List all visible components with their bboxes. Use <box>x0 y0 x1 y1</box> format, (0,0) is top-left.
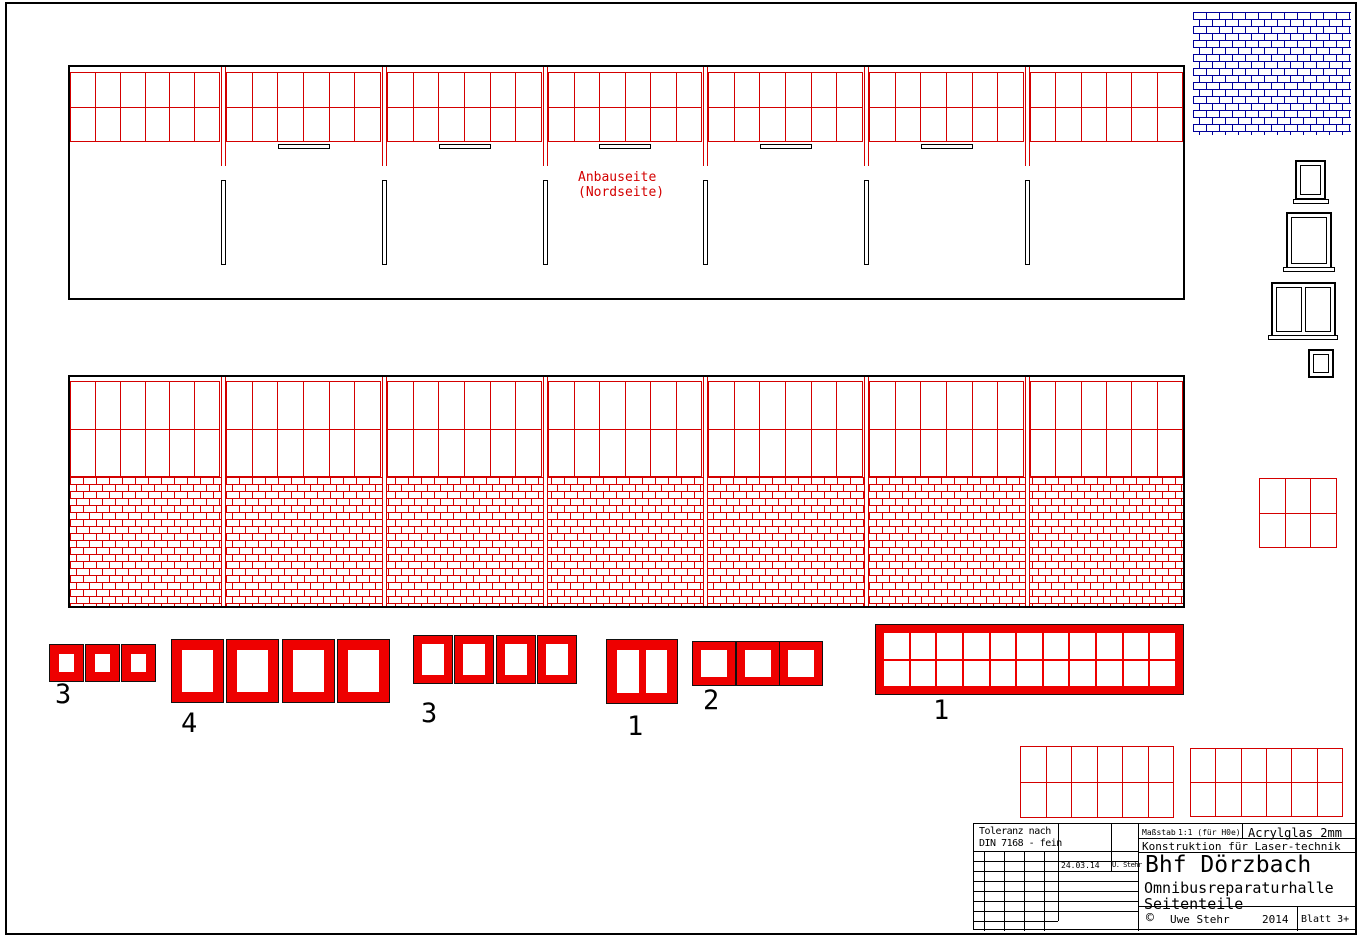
window-sill-detail <box>1283 267 1335 272</box>
window-pane <box>1158 73 1182 107</box>
panel-divider <box>864 377 869 606</box>
window-pane <box>837 73 862 107</box>
window-pane <box>465 430 490 477</box>
window-pane <box>195 430 219 477</box>
window-pane <box>1267 749 1291 782</box>
window-pane <box>1098 747 1123 782</box>
window-pane <box>71 382 95 429</box>
window-sill <box>278 144 330 149</box>
window-sill <box>439 144 491 149</box>
part-pane <box>463 644 485 675</box>
south-window-panel <box>226 381 381 477</box>
window-pane <box>121 108 145 142</box>
window-pane <box>549 382 574 429</box>
window-pane <box>96 430 120 477</box>
material-spec: Acrylglas 2mm <box>1248 826 1342 840</box>
window-pane <box>870 430 895 477</box>
panel-divider <box>864 67 869 166</box>
window-pane <box>991 661 1016 687</box>
north-window-panel <box>226 72 381 142</box>
window-pane <box>1082 382 1106 429</box>
window-pane <box>170 108 194 142</box>
window-sill-detail <box>1293 199 1329 204</box>
window-pane <box>1123 783 1148 818</box>
window-pane <box>973 108 998 142</box>
window-pane <box>651 382 676 429</box>
window-pane <box>227 430 252 477</box>
window-pane <box>278 382 303 429</box>
window-pane <box>170 430 194 477</box>
window-pane <box>575 73 600 107</box>
north-window-panel <box>1030 72 1183 142</box>
window-pane <box>516 73 541 107</box>
window-pane <box>964 661 989 687</box>
scale-value: 1:1 (für H0e) <box>1178 828 1241 837</box>
window-pane <box>626 382 651 429</box>
cut-part-4 <box>283 640 334 702</box>
part-pane <box>348 650 379 692</box>
window-pane <box>1056 73 1080 107</box>
window-pane <box>626 430 651 477</box>
window-pane <box>549 108 574 142</box>
detail-window-small <box>1295 160 1326 200</box>
window-pane <box>575 108 600 142</box>
blue-brick-panel <box>1193 12 1351 135</box>
part-number-label: 1 <box>627 711 643 742</box>
tb-line <box>1044 851 1045 931</box>
window-pane <box>973 430 998 477</box>
window-pane <box>1191 749 1215 782</box>
window-pane <box>600 430 625 477</box>
window-pane <box>491 382 516 429</box>
window-pane <box>414 430 439 477</box>
window-pane <box>355 430 380 477</box>
part-pane <box>745 650 771 677</box>
panel-divider <box>703 377 708 606</box>
part-pane <box>95 654 110 672</box>
window-pane <box>651 73 676 107</box>
window-sill <box>921 144 973 149</box>
window-pane <box>921 73 946 107</box>
panel-divider <box>1025 377 1030 606</box>
window-pane <box>1070 633 1095 659</box>
window-pane <box>575 430 600 477</box>
window-pane <box>491 430 516 477</box>
window-pane <box>304 108 329 142</box>
window-sill <box>599 144 651 149</box>
window-pane <box>760 108 785 142</box>
window-pane <box>195 108 219 142</box>
window-pane <box>516 382 541 429</box>
window-pane <box>253 108 278 142</box>
window-pane <box>884 661 909 687</box>
tb-line <box>1058 851 1059 921</box>
part-number-label: 2 <box>703 685 719 716</box>
window-pane <box>1107 108 1131 142</box>
window-inner-frame <box>1300 165 1321 195</box>
window-pane <box>998 73 1023 107</box>
window-pane <box>947 430 972 477</box>
window-pane <box>1107 430 1131 477</box>
window-pane <box>911 661 936 687</box>
window-pane <box>330 73 355 107</box>
window-pane <box>253 73 278 107</box>
window-pane <box>1286 514 1311 548</box>
window-pane <box>491 108 516 142</box>
copyright-year: 2014 <box>1262 913 1289 926</box>
support-pillar <box>382 180 387 265</box>
part-number-label: 4 <box>181 708 197 739</box>
drawing-subtitle-2: Seitenteile <box>1144 895 1243 913</box>
window-pane <box>921 430 946 477</box>
window-pane <box>1044 633 1069 659</box>
window-pane <box>1031 382 1055 429</box>
window-pane <box>414 382 439 429</box>
tb-line <box>974 891 1138 892</box>
part-pane <box>505 644 527 675</box>
window-pane <box>837 108 862 142</box>
window-pane <box>1260 514 1285 548</box>
north-window-panel <box>708 72 863 142</box>
window-pane <box>837 382 862 429</box>
window-pane <box>146 73 170 107</box>
window-pane <box>1047 783 1072 818</box>
window-pane <box>1082 73 1106 107</box>
panel-divider <box>382 377 387 606</box>
window-inner-frame <box>1291 217 1327 264</box>
north-window-panel <box>548 72 702 142</box>
window-pane <box>304 382 329 429</box>
window-pane <box>414 73 439 107</box>
window-pane <box>1021 783 1046 818</box>
tb-line <box>974 881 1138 882</box>
part-window-grid <box>884 633 1175 686</box>
tb-line <box>974 911 1138 912</box>
window-pane <box>253 382 278 429</box>
cut-part-1 <box>607 640 677 703</box>
window-pane <box>626 73 651 107</box>
window-pane <box>439 108 464 142</box>
panel-divider <box>543 67 548 166</box>
window-pane <box>575 382 600 429</box>
window-pane <box>896 73 921 107</box>
panel-divider <box>221 67 226 166</box>
window-pane <box>760 430 785 477</box>
window-pane <box>1158 382 1182 429</box>
tb-line <box>1138 824 1139 931</box>
window-pane <box>1082 108 1106 142</box>
window-pane <box>709 108 734 142</box>
window-pane <box>947 73 972 107</box>
window-pane <box>812 430 837 477</box>
window-pane <box>71 73 95 107</box>
window-pane <box>1286 479 1311 513</box>
window-pane <box>1292 749 1316 782</box>
tolerance-line1: Toleranz nach <box>979 826 1062 838</box>
window-pane <box>96 382 120 429</box>
panel-divider <box>703 67 708 166</box>
window-pane <box>1260 479 1285 513</box>
cut-part-2 <box>780 642 822 685</box>
cut-part-4 <box>172 640 223 702</box>
part-pane <box>182 650 213 692</box>
window-pane <box>195 382 219 429</box>
red-brick-base <box>70 477 1183 606</box>
window-pane <box>1124 661 1149 687</box>
author-name: Uwe Stehr <box>1170 913 1230 926</box>
window-pane <box>964 633 989 659</box>
window-pane <box>1031 430 1055 477</box>
window-pane <box>1031 108 1055 142</box>
window-pane <box>973 382 998 429</box>
window-pane <box>1070 661 1095 687</box>
window-pane <box>786 382 811 429</box>
window-pane <box>1191 783 1215 816</box>
window-pane <box>278 430 303 477</box>
cut-part-1 <box>876 625 1183 694</box>
cut-part-3 <box>455 636 493 683</box>
south-window-panel <box>1030 381 1183 477</box>
window-pane <box>1216 749 1240 782</box>
tb-line <box>974 851 1138 852</box>
window-pane <box>709 73 734 107</box>
window-pane <box>812 108 837 142</box>
window-pane <box>227 108 252 142</box>
drawing-sheet: Anbauseite (Nordseite) 343121 <box>0 0 1366 940</box>
part-pane <box>646 650 668 693</box>
window-pane <box>973 73 998 107</box>
window-pane <box>388 73 413 107</box>
window-pane <box>355 382 380 429</box>
window-pane <box>1097 633 1122 659</box>
window-pane <box>1056 382 1080 429</box>
window-pane <box>439 430 464 477</box>
window-pane <box>600 108 625 142</box>
window-pane <box>549 73 574 107</box>
tb-line <box>974 901 1138 902</box>
window-pane <box>96 73 120 107</box>
window-pane <box>146 382 170 429</box>
window-pane <box>1044 661 1069 687</box>
north-window-panel <box>869 72 1024 142</box>
window-pane <box>991 633 1016 659</box>
window-pane <box>146 430 170 477</box>
drafter-name: U. Stehr <box>1112 861 1142 869</box>
window-pane <box>1267 783 1291 816</box>
window-pane <box>1158 108 1182 142</box>
window-pane <box>677 108 702 142</box>
window-pane <box>600 382 625 429</box>
window-pane <box>677 73 702 107</box>
window-pane <box>786 430 811 477</box>
window-pane <box>1082 430 1106 477</box>
window-pane <box>1242 749 1266 782</box>
window-pane <box>998 108 1023 142</box>
window-inner-frame <box>1305 287 1331 332</box>
window-pane <box>812 73 837 107</box>
window-pane <box>304 430 329 477</box>
scale-label: Maßstab <box>1142 828 1176 837</box>
window-pane <box>195 73 219 107</box>
tb-line <box>984 851 985 931</box>
part-pane <box>131 654 146 672</box>
window-pane <box>947 108 972 142</box>
cut-part-3 <box>414 636 452 683</box>
window-pane <box>1107 382 1131 429</box>
tb-line <box>1024 851 1025 931</box>
window-pane <box>600 73 625 107</box>
window-pane <box>516 430 541 477</box>
cut-part-3 <box>497 636 535 683</box>
part-pane <box>617 650 639 693</box>
window-pane <box>355 108 380 142</box>
window-pane <box>1056 430 1080 477</box>
window-pane <box>227 382 252 429</box>
tolerance-line2: DIN 7168 - fein <box>979 838 1062 850</box>
detail-window-double <box>1271 282 1336 337</box>
tb-line <box>974 921 1058 922</box>
window-pane <box>355 73 380 107</box>
window-pane <box>896 382 921 429</box>
part-number-label: 3 <box>55 679 71 710</box>
window-pane <box>709 382 734 429</box>
drawing-title: Bhf Dörzbach <box>1145 852 1311 878</box>
window-pane <box>709 430 734 477</box>
window-pane <box>1056 108 1080 142</box>
cut-part-3 <box>86 645 119 681</box>
bottom-window-grid-1 <box>1020 746 1174 818</box>
window-pane <box>1318 749 1342 782</box>
detail-window-tiny <box>1308 349 1334 378</box>
window-pane <box>947 382 972 429</box>
part-pane <box>237 650 268 692</box>
window-pane <box>937 633 962 659</box>
window-pane <box>304 73 329 107</box>
window-pane <box>71 430 95 477</box>
support-pillar <box>543 180 548 265</box>
window-pane <box>921 382 946 429</box>
window-pane <box>1132 108 1156 142</box>
cut-part-4 <box>227 640 278 702</box>
window-pane <box>1072 783 1097 818</box>
window-pane <box>253 430 278 477</box>
window-pane <box>439 382 464 429</box>
annotation-line1: Anbauseite <box>578 170 664 185</box>
window-pane <box>626 108 651 142</box>
window-pane <box>896 430 921 477</box>
window-pane <box>1292 783 1316 816</box>
window-pane <box>439 73 464 107</box>
south-window-panel <box>869 381 1024 477</box>
window-pane <box>937 661 962 687</box>
window-pane <box>170 73 194 107</box>
window-pane <box>1098 783 1123 818</box>
window-pane <box>896 108 921 142</box>
revision-date: 24.03.14 <box>1061 861 1100 870</box>
north-side-annotation: Anbauseite (Nordseite) <box>578 170 664 200</box>
title-block: Toleranz nach DIN 7168 - fein 24.03.14 U… <box>973 823 1357 930</box>
window-pane <box>465 108 490 142</box>
window-pane <box>330 108 355 142</box>
window-pane <box>1123 747 1148 782</box>
window-pane <box>735 73 760 107</box>
window-pane <box>677 382 702 429</box>
window-pane <box>735 382 760 429</box>
part-pane <box>59 654 74 672</box>
window-pane <box>330 382 355 429</box>
window-pane <box>121 430 145 477</box>
window-pane <box>760 73 785 107</box>
window-pane <box>1150 633 1175 659</box>
window-pane <box>1107 73 1131 107</box>
window-pane <box>1149 747 1174 782</box>
window-pane <box>278 73 303 107</box>
panel-divider <box>221 377 226 606</box>
window-pane <box>735 430 760 477</box>
south-window-panel <box>708 381 863 477</box>
window-pane <box>1158 430 1182 477</box>
window-inner-frame <box>1276 287 1302 332</box>
window-pane <box>549 430 574 477</box>
window-pane <box>491 73 516 107</box>
window-pane <box>414 108 439 142</box>
support-pillar <box>221 180 226 265</box>
window-pane <box>146 108 170 142</box>
window-pane <box>921 108 946 142</box>
panel-divider <box>382 67 387 166</box>
window-pane <box>96 108 120 142</box>
window-pane <box>884 633 909 659</box>
bottom-window-grid-2 <box>1190 748 1343 817</box>
window-pane <box>870 382 895 429</box>
window-pane <box>1072 747 1097 782</box>
window-pane <box>837 430 862 477</box>
window-pane <box>1031 73 1055 107</box>
window-pane <box>1132 430 1156 477</box>
window-pane <box>1132 382 1156 429</box>
window-pane <box>1318 783 1342 816</box>
cut-part-3 <box>538 636 576 683</box>
right-window-grid <box>1259 478 1337 548</box>
window-inner-frame <box>1313 354 1329 373</box>
sheet-number: Blatt 3+ <box>1301 914 1349 925</box>
south-window-panel <box>387 381 542 477</box>
part-pane <box>701 650 727 677</box>
window-pane <box>1017 661 1042 687</box>
tb-line <box>1297 906 1298 931</box>
window-pane <box>1242 783 1266 816</box>
window-pane <box>516 108 541 142</box>
south-window-panel <box>548 381 702 477</box>
copyright-icon: © <box>1146 911 1154 926</box>
part-pane <box>422 644 444 675</box>
window-pane <box>330 430 355 477</box>
part-pane <box>293 650 324 692</box>
part-pane <box>546 644 568 675</box>
panel-divider <box>1025 67 1030 166</box>
window-pane <box>998 430 1023 477</box>
window-pane <box>1021 747 1046 782</box>
window-pane <box>1132 73 1156 107</box>
window-pane <box>870 108 895 142</box>
support-pillar <box>703 180 708 265</box>
window-pane <box>1124 633 1149 659</box>
north-window-panel <box>70 72 220 142</box>
window-pane <box>1017 633 1042 659</box>
support-pillar <box>864 180 869 265</box>
window-pane <box>1311 514 1336 548</box>
window-pane <box>786 108 811 142</box>
